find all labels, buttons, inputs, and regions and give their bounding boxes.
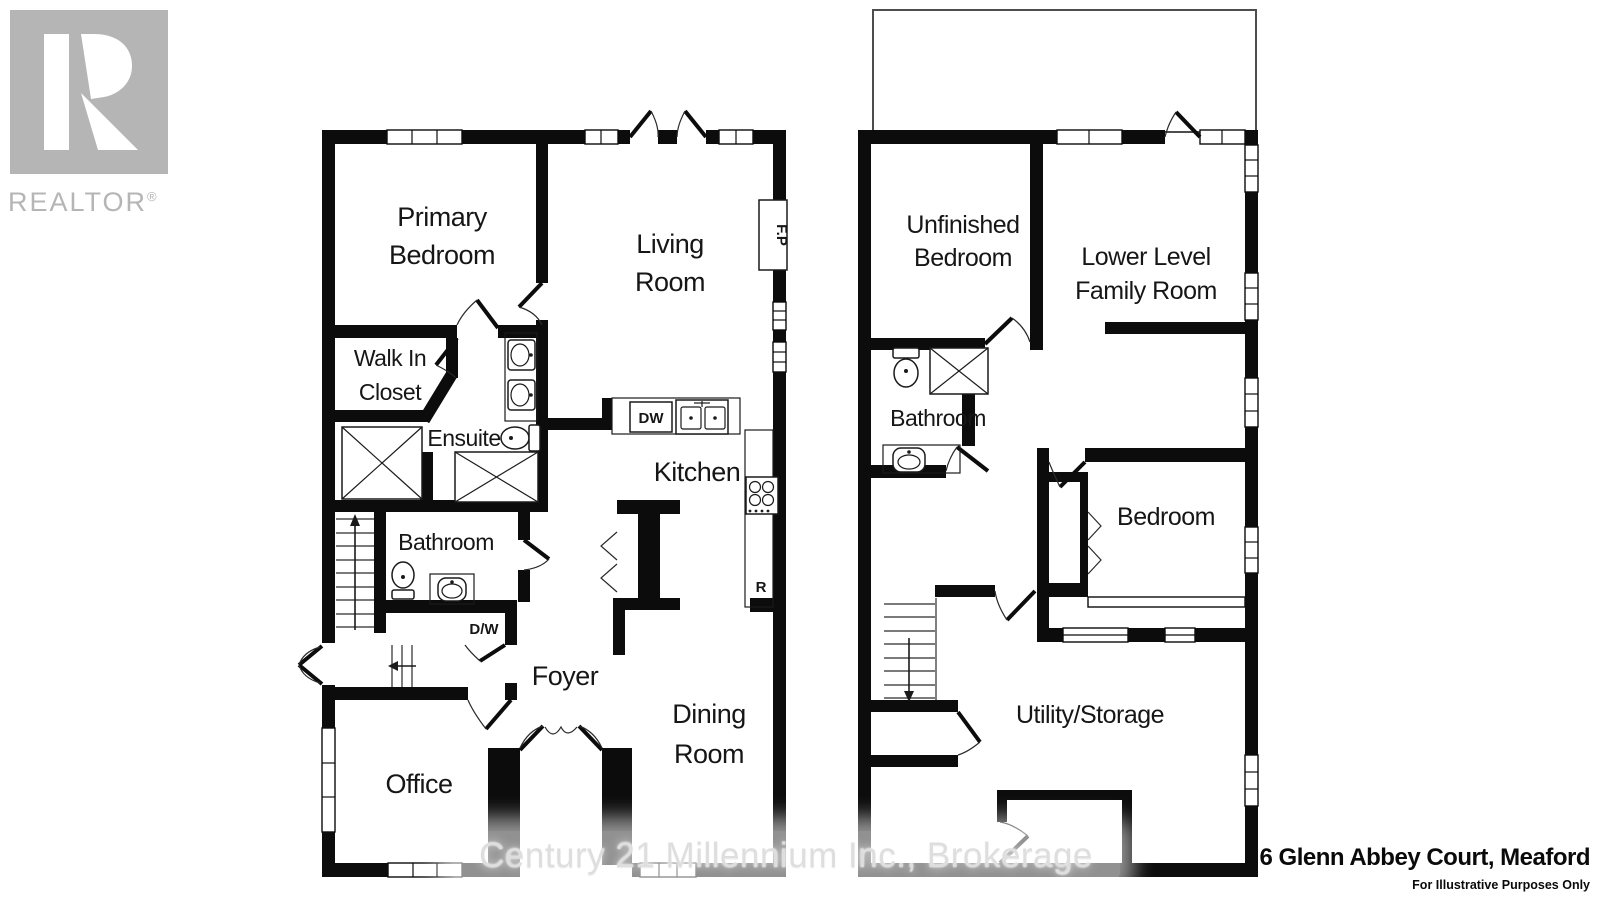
room-label-foyer: Foyer	[532, 661, 599, 691]
room-label-bathroom: Bathroom	[398, 529, 494, 555]
lower-level-plan: Unfinished Bedroom Lower Level Family Ro…	[858, 10, 1258, 877]
sink-icon	[883, 445, 960, 473]
lower-staircase	[884, 598, 936, 702]
refrigerator-label: R	[756, 579, 767, 596]
stove-icon	[746, 477, 778, 514]
room-label-unfinished-bedroom-2: Bedroom	[914, 244, 1012, 272]
room-label-dining-room-2: Room	[674, 739, 744, 769]
disclaimer-text: For Illustrative Purposes Only	[1260, 877, 1590, 893]
toilet-icon	[893, 348, 919, 387]
main-floor-plan: F.P	[299, 111, 790, 877]
shower-icon	[930, 348, 988, 394]
room-label-office: Office	[385, 769, 452, 799]
bathroom-toilet-icon	[392, 562, 414, 599]
room-label-living-room-2: Room	[635, 267, 705, 297]
ensuite-toilet-icon	[501, 425, 540, 451]
room-label-living-room: Living	[636, 229, 704, 259]
fireplace-label: F.P	[773, 224, 790, 246]
floor-plan-canvas: F.P	[0, 0, 1600, 907]
room-label-lower-bathroom: Bathroom	[890, 405, 986, 431]
property-address: 6 Glenn Abbey Court, Meaford	[1260, 843, 1590, 873]
ensuite-vanity	[505, 333, 537, 421]
room-label-kitchen: Kitchen	[654, 457, 741, 487]
room-label-primary-bedroom: Primary	[397, 202, 487, 232]
dishwasher-label: DW	[639, 410, 665, 427]
room-label-dining-room: Dining	[672, 699, 746, 729]
room-label-utility-storage: Utility/Storage	[1016, 701, 1164, 729]
room-label-walk-in-closet-2: Closet	[359, 379, 422, 405]
ensuite-shower	[342, 427, 422, 499]
floor-plan-page: REALTOR®	[0, 0, 1600, 907]
room-label-primary-bedroom-2: Bedroom	[389, 240, 495, 270]
room-label-ensuite: Ensuite	[427, 425, 500, 451]
laundry-label: D/W	[469, 621, 499, 638]
room-label-unfinished-bedroom: Unfinished	[906, 211, 1019, 239]
room-label-family-room-2: Family Room	[1075, 277, 1217, 305]
room-label-walk-in-closet: Walk In	[354, 345, 426, 371]
footer-address-block: 6 Glenn Abbey Court, Meaford For Illustr…	[1260, 843, 1590, 893]
upper-outline	[873, 10, 1256, 132]
ensuite-tub	[455, 452, 538, 502]
fireplace: F.P	[759, 200, 790, 270]
bathroom-sink-icon	[430, 574, 474, 604]
brokerage-watermark: Century 21 Millennium Inc., Brokerage	[452, 831, 1120, 881]
room-label-lower-bedroom: Bedroom	[1117, 503, 1215, 531]
room-label-family-room: Lower Level	[1081, 243, 1210, 271]
